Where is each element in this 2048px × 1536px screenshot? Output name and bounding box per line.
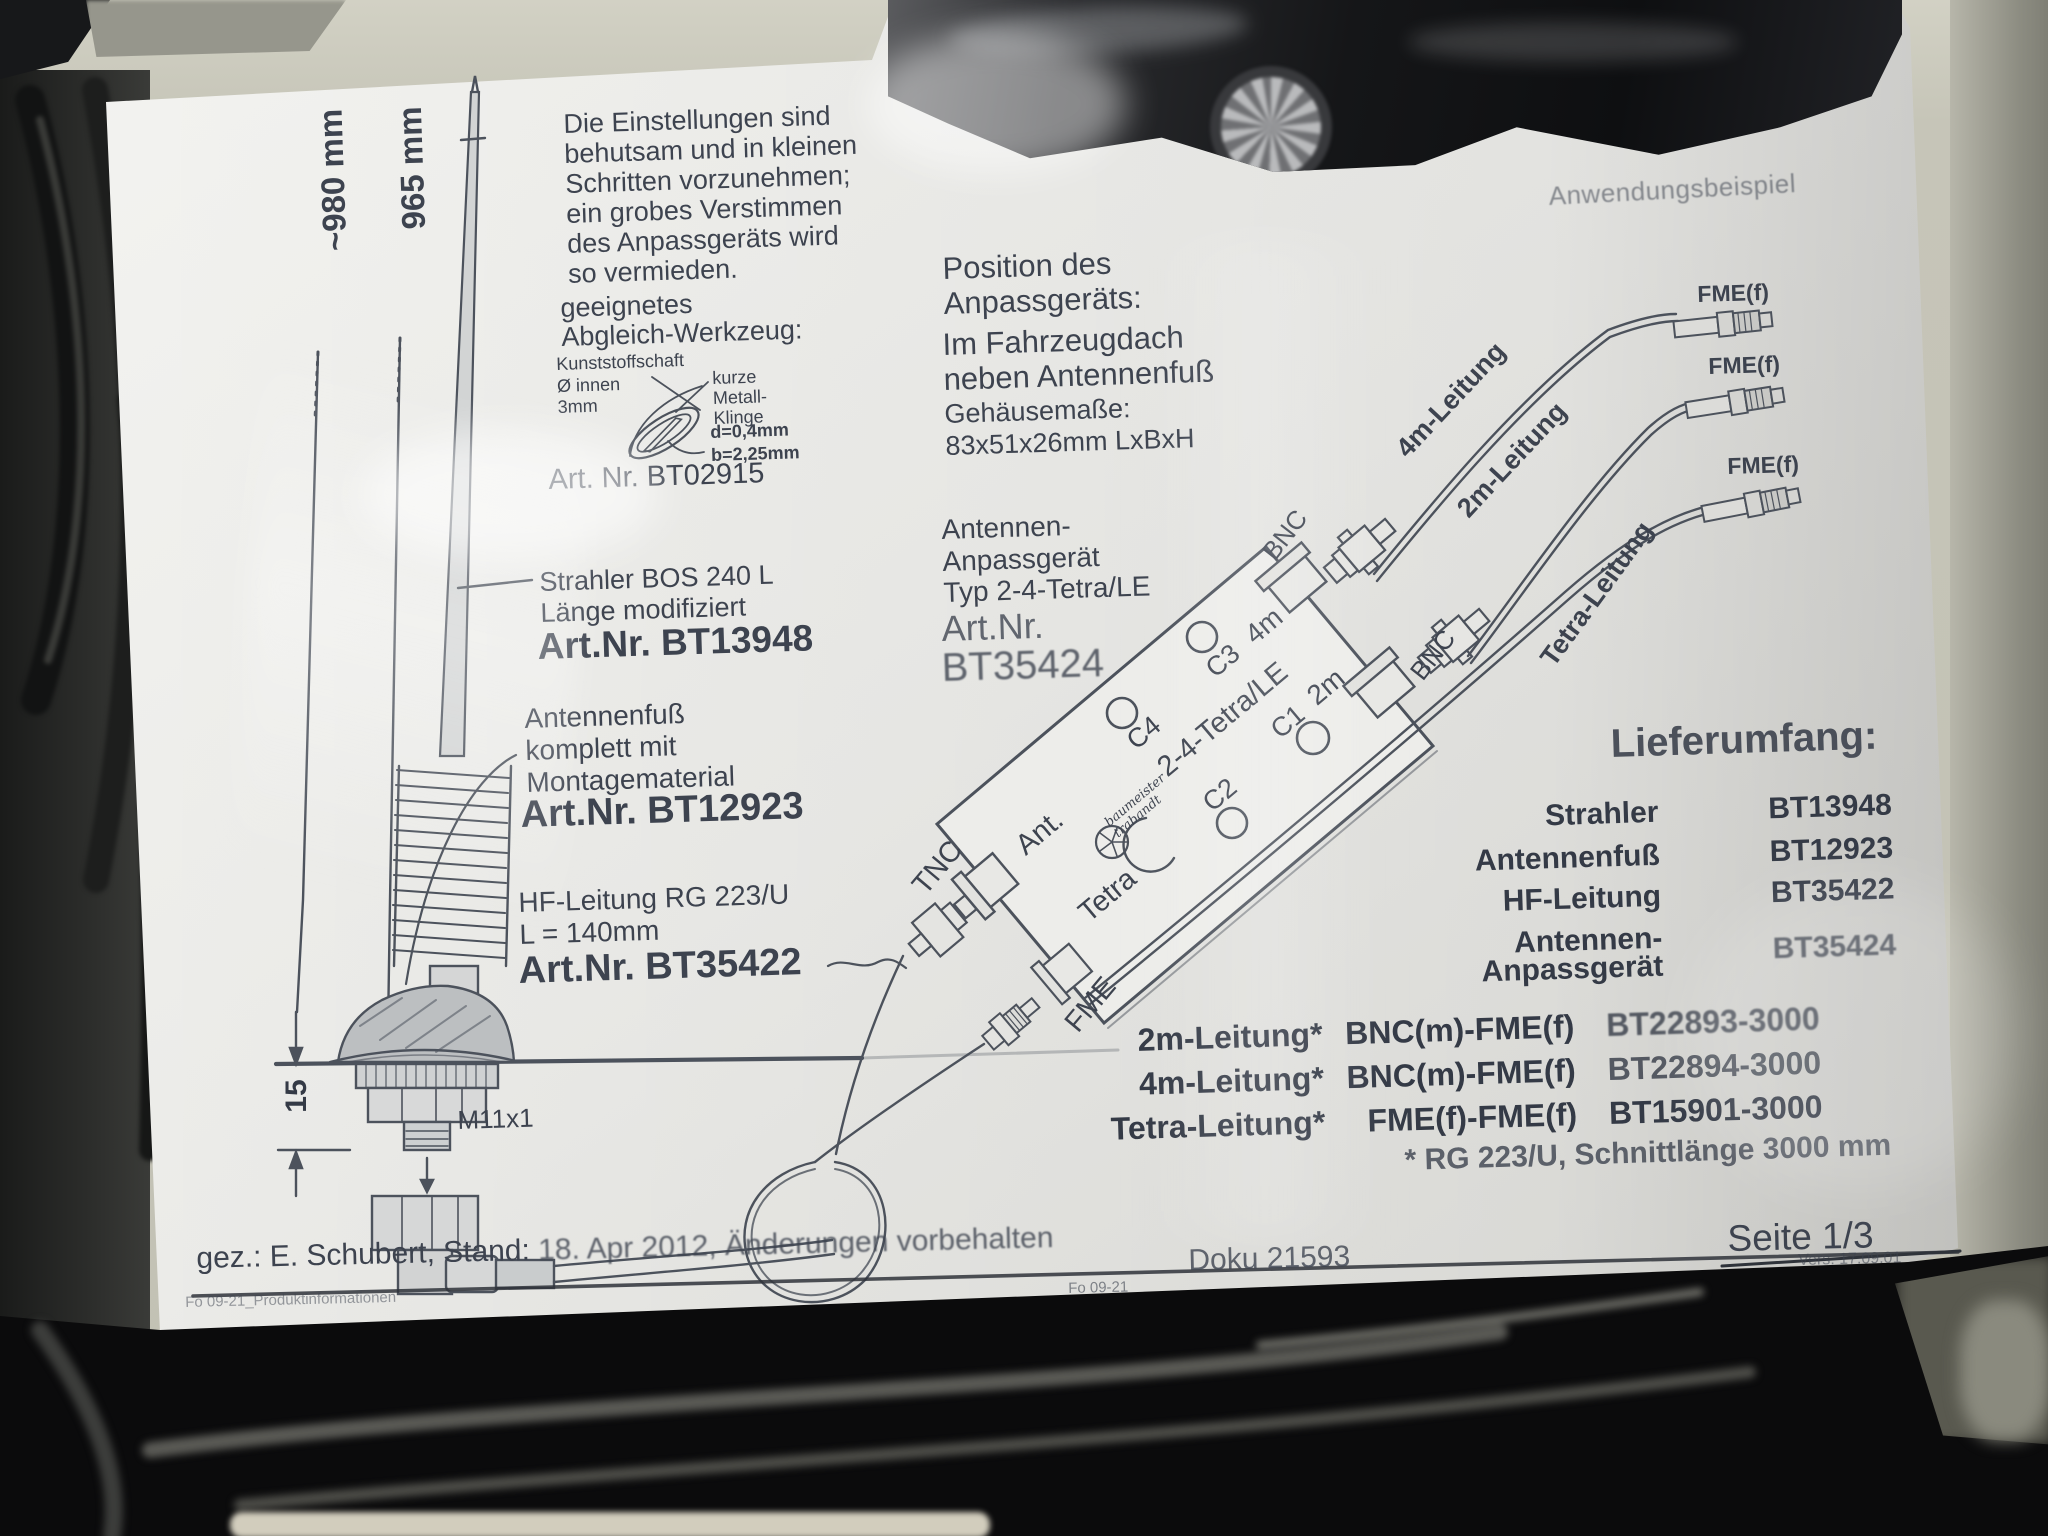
- cable-name: 2m-Leitung*: [1100, 1017, 1323, 1058]
- fme-f-label-2: FME(f): [1708, 351, 1780, 379]
- lieferumfang-title: Lieferumfang:: [1610, 714, 1878, 768]
- cable-connectors: BNC(m)-FME(f): [1323, 1053, 1576, 1095]
- lieferumfang-table: Strahler BT13948 Antennenfuß BT12923 HF-…: [1460, 787, 1936, 987]
- anpassgeraet-art-no: BT35424: [941, 641, 1105, 692]
- tool-art-no: Art. Nr. BT02915: [548, 457, 765, 497]
- position-body: Im Fahrzeugdach neben Antennenfuß: [942, 319, 1215, 397]
- footer-version: Vers. 17.09.01: [1798, 1249, 1902, 1270]
- strahler-desc: Strahler BOS 240 L Länge modifiziert: [539, 560, 775, 629]
- lieferumfang-label: Antennenfuß: [1461, 839, 1660, 878]
- cable-art-no: BT22893-3000: [1606, 1001, 1820, 1042]
- table-row: HF-Leitung BT35422: [1463, 871, 1934, 919]
- dimension-15-label: 15: [280, 1079, 314, 1112]
- antennenfuss-desc: Antennenfuß komplett mit Montagematerial: [524, 696, 735, 798]
- hf-leitung-art-no: Art.Nr. BT35422: [518, 941, 802, 993]
- anpassgeraet-desc: Antennen- Anpassgerät Typ 2-4-Tetra/LE: [941, 507, 1151, 608]
- lieferumfang-label: HF-Leitung: [1463, 880, 1662, 919]
- strahler-art-no: Art.Nr. BT13948: [537, 617, 814, 668]
- adjustment-note: Die Einstellungen sind behutsam und in k…: [563, 101, 861, 290]
- cable-art-no: BT15901-3000: [1609, 1089, 1823, 1130]
- position-heading: Position des Anpassgeräts:: [942, 246, 1142, 322]
- lieferumfang-value: BT12923: [1769, 831, 1893, 868]
- table-edge-strip: [230, 1512, 990, 1536]
- footer-gez-label: gez.: E. Schubert, Stand:: [196, 1234, 539, 1275]
- cable-connectors: BNC(m)-FME(f): [1322, 1009, 1575, 1051]
- lieferumfang-value: BT35422: [1770, 872, 1894, 909]
- tool-heading: geeignetes Abgleich-Werkzeug:: [560, 286, 803, 352]
- tool-shaft-label: Kunststoffschaft Ø innen 3mm: [556, 350, 686, 419]
- thread-size-label: M11x1: [457, 1104, 534, 1136]
- cable-art-no: BT22894-3000: [1607, 1045, 1821, 1086]
- footer-form-mid: Fo 09-21: [1068, 1279, 1128, 1298]
- fme-f-label-1: FME(f): [1697, 279, 1769, 307]
- lieferumfang-value: BT13948: [1768, 788, 1892, 825]
- lieferumfang-label: Antennen- Anpassgerät: [1464, 925, 1664, 987]
- table-row: Antennenfuß BT12923: [1461, 830, 1932, 878]
- hf-leitung-desc: HF-Leitung RG 223/U L = 140mm: [518, 878, 791, 950]
- antennenfuss-art-no: Art.Nr. BT12923: [520, 785, 804, 837]
- dimension-965-label: 965 mm: [391, 106, 433, 230]
- cable-name: Tetra-Leitung*: [1103, 1105, 1326, 1146]
- lieferumfang-label: Strahler: [1460, 796, 1659, 835]
- case-dimensions: Gehäusemaße: 83x51x26mm LxBxH: [944, 391, 1195, 463]
- cable-connectors: FME(f)-FME(f): [1325, 1097, 1578, 1139]
- cable-name: 4m-Leitung*: [1101, 1061, 1324, 1102]
- fme-f-label-3: FME(f): [1727, 451, 1799, 479]
- lieferumfang-value: BT35424: [1772, 931, 1896, 963]
- footer-doku: Doku 21593: [1188, 1240, 1351, 1278]
- bag-fold-2: [1960, 1300, 2048, 1440]
- photo-of-product-sheet-in-bag: ~980 mm 965 mm 15 M11x1 Die Einstellunge…: [0, 0, 2048, 1536]
- dimension-980-label: ~980 mm: [312, 108, 355, 251]
